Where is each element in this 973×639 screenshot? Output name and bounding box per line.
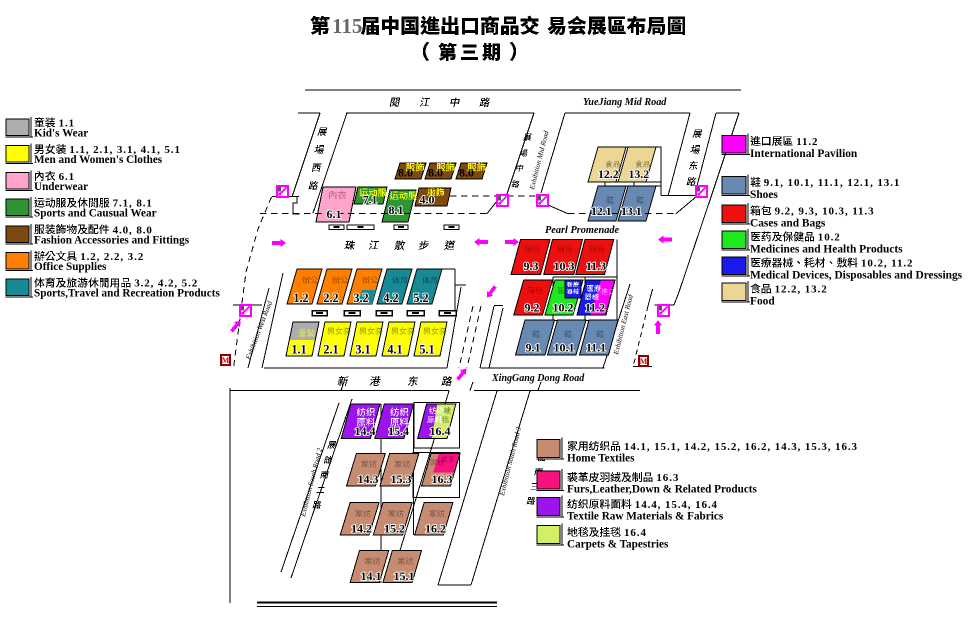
svg-text:12.2: 12.2: [598, 167, 619, 181]
svg-text:11.2: 11.2: [585, 301, 605, 315]
svg-text:12.1: 12.1: [591, 204, 612, 218]
svg-text:Sports and Causual Wear: Sports and Causual Wear: [34, 208, 157, 220]
svg-text:8.0: 8.0: [459, 166, 474, 180]
svg-text:Medicines and Health Products: Medicines and Health Products: [750, 244, 903, 256]
svg-text:8.1: 8.1: [389, 203, 404, 217]
svg-text:XingGang Dong Road: XingGang Dong Road: [491, 373, 585, 384]
svg-text:16.3: 16.3: [656, 472, 679, 484]
svg-text:3.1: 3.1: [355, 343, 370, 357]
svg-text:Carpets & Tapestries: Carpets & Tapestries: [567, 538, 669, 550]
svg-text:11.2: 11.2: [796, 136, 818, 148]
svg-text:5.1: 5.1: [419, 343, 434, 357]
svg-text:14.1, 15.1, 14.2, 15.2, 16.2,: 14.1, 15.1, 14.2, 15.2, 16.2, 14.3, 15.3…: [624, 441, 858, 453]
svg-text:9.2, 9.3, 10.3, 11.3: 9.2, 9.3, 10.3, 11.3: [775, 206, 875, 218]
svg-text:14.4, 15.4, 16.4: 14.4, 15.4, 16.4: [635, 499, 718, 511]
svg-text:M: M: [222, 356, 230, 365]
svg-text:10.2: 10.2: [818, 232, 841, 244]
svg-text:10.3: 10.3: [554, 259, 575, 273]
svg-text:10.1: 10.1: [554, 341, 575, 355]
svg-text:11.1: 11.1: [586, 341, 606, 355]
svg-text:Sports,Travel and Recreation P: Sports,Travel and Recreation Products: [34, 288, 220, 300]
svg-text:Shoes: Shoes: [750, 189, 778, 201]
svg-text:6.1: 6.1: [327, 207, 342, 221]
svg-text:3.2: 3.2: [353, 291, 368, 305]
svg-text:15.1: 15.1: [394, 569, 415, 583]
svg-text:13.1: 13.1: [621, 204, 642, 218]
svg-text:10.2: 10.2: [553, 301, 574, 315]
svg-text:115: 115: [332, 14, 362, 38]
svg-text:9.3: 9.3: [524, 259, 539, 273]
svg-text:2.2: 2.2: [323, 291, 338, 305]
svg-text:16.3: 16.3: [432, 472, 453, 486]
svg-text:Office Supplies: Office Supplies: [34, 261, 107, 273]
svg-text:9.2: 9.2: [525, 301, 540, 315]
svg-text:16.2: 16.2: [425, 522, 446, 536]
svg-text:15.3: 15.3: [391, 472, 412, 486]
svg-text:Pearl Promenade: Pearl Promenade: [545, 225, 619, 236]
svg-text:10.2, 11.2: 10.2, 11.2: [861, 258, 913, 270]
svg-text:14.4: 14.4: [355, 424, 376, 438]
svg-text:4.1: 4.1: [387, 343, 402, 357]
svg-text:Cases and Bags: Cases and Bags: [750, 218, 826, 230]
svg-text:Kid's Wear: Kid's Wear: [34, 128, 88, 140]
svg-text:1.2: 1.2: [293, 291, 308, 305]
svg-text:International Pavilion: International Pavilion: [750, 148, 858, 160]
svg-text:8.0: 8.0: [398, 166, 413, 180]
svg-text:15.4: 15.4: [388, 424, 409, 438]
svg-text:YueJiang Mid Road: YueJiang Mid Road: [583, 97, 667, 108]
svg-text:12.2, 13.2: 12.2, 13.2: [775, 284, 828, 296]
svg-text:Food: Food: [750, 296, 775, 308]
svg-text:Medical Devices, Disposables a: Medical Devices, Disposables and Dressin…: [750, 270, 963, 282]
svg-text:14.1: 14.1: [361, 569, 382, 583]
svg-text:4.0: 4.0: [420, 193, 435, 207]
svg-text:8.0: 8.0: [428, 166, 443, 180]
svg-text:Men and Women's Clothes: Men and Women's Clothes: [34, 154, 163, 166]
svg-text:Textile Raw Materials & Fabric: Textile Raw Materials & Fabrics: [567, 510, 724, 522]
svg-text:16.4: 16.4: [624, 527, 647, 539]
svg-text:Furs,Leather,Down & Related Pr: Furs,Leather,Down & Related Products: [567, 484, 758, 496]
svg-text:5.2: 5.2: [413, 291, 428, 305]
svg-text:9.1, 10.1, 11.1, 12.1, 13.1: 9.1, 10.1, 11.1, 12.1, 13.1: [764, 177, 900, 189]
svg-text:15.2: 15.2: [384, 522, 405, 536]
svg-text:M: M: [640, 357, 648, 366]
svg-text:Home Textiles: Home Textiles: [567, 452, 635, 464]
svg-text:7.1: 7.1: [363, 195, 378, 207]
svg-text:14.3: 14.3: [358, 472, 379, 486]
svg-text:14.2: 14.2: [351, 522, 372, 536]
svg-text:9.1: 9.1: [526, 341, 541, 355]
svg-text:Fashion Accessories and Fittin: Fashion Accessories and Fittings: [34, 234, 190, 246]
svg-text:11.3: 11.3: [586, 259, 606, 273]
svg-text:4.2: 4.2: [383, 291, 398, 305]
svg-text:16.4: 16.4: [430, 424, 451, 438]
svg-text:2.1: 2.1: [323, 343, 338, 357]
svg-text:13.2: 13.2: [629, 167, 650, 181]
svg-text:Underwear: Underwear: [34, 181, 88, 193]
svg-text:1.1: 1.1: [291, 343, 306, 357]
